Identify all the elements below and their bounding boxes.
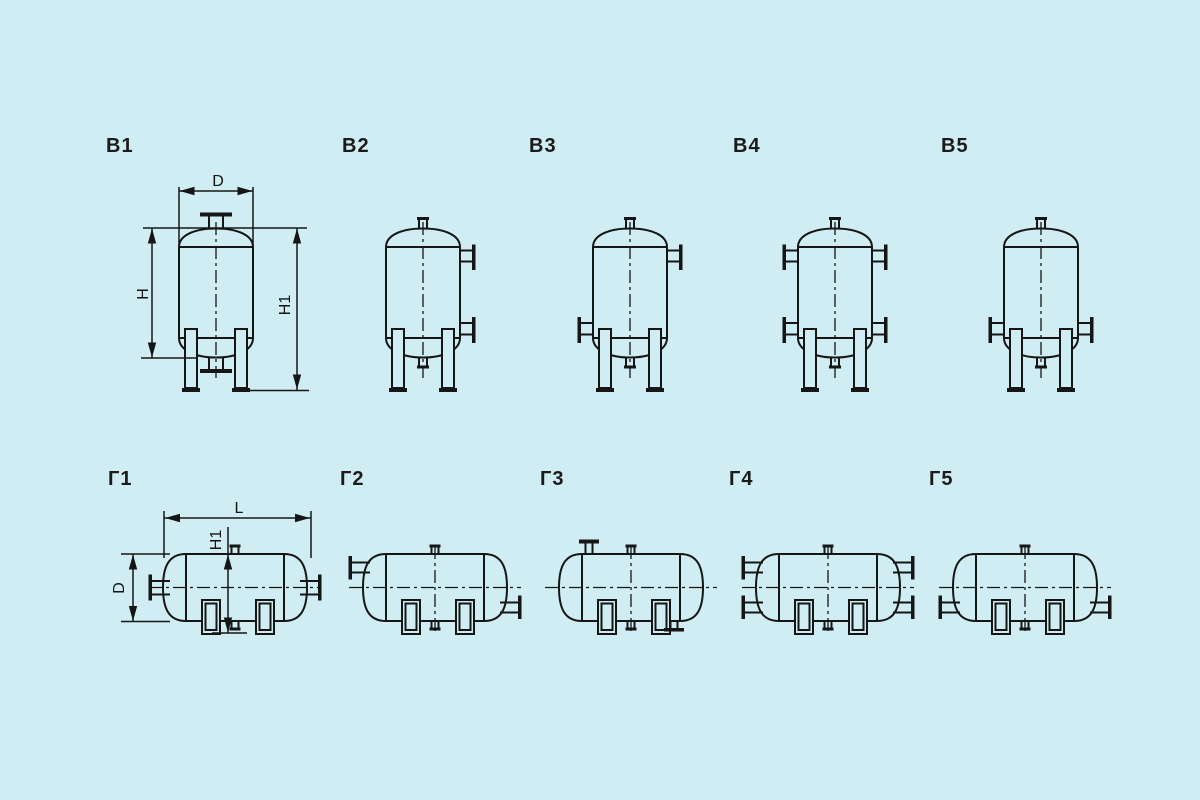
nozzle-side-upper-right	[667, 245, 683, 271]
variant-label-b4: В4	[733, 135, 761, 157]
nozzle-end-lower-left	[939, 596, 961, 620]
vessel-4-horizontal	[742, 545, 915, 635]
dim-label-diameter-g1: D	[111, 582, 128, 594]
nozzle-end-lower-right	[500, 596, 522, 620]
nozzle-side-upper-left	[783, 245, 799, 271]
nozzle-end-lower-left	[742, 596, 764, 620]
drawing-sheet: В1 В2 В3 В4 В5 Г1 Г2 Г3 Г4 Г5 D H H1 L H…	[0, 0, 1200, 800]
dim-label-height-overall-b1: H1	[277, 295, 294, 316]
nozzle-end-upper-left	[349, 556, 371, 580]
nozzle-top-flanged-left	[579, 540, 599, 555]
vessel-5-horizontal	[939, 545, 1112, 635]
variant-label-b1: В1	[106, 135, 134, 157]
vessel-3-horizontal	[545, 540, 717, 635]
vessel-4-vertical	[783, 217, 888, 392]
vessel-2-horizontal	[349, 545, 522, 635]
nozzle-end-upper-left	[742, 556, 764, 580]
variant-label-b3: В3	[529, 135, 557, 157]
vessel-1-vertical	[179, 213, 253, 393]
variant-label-g4: Г4	[729, 468, 753, 490]
nozzle-end-lower-right	[893, 596, 915, 620]
nozzle-side-lower-left	[783, 317, 799, 343]
vessel-1-horizontal	[149, 545, 322, 635]
variant-label-g1: Г1	[108, 468, 132, 490]
nozzle-side-lower-right	[872, 317, 888, 343]
dim-label-diameter-b1: D	[212, 173, 224, 190]
nozzle-side-lower-right	[1078, 317, 1094, 343]
variant-label-b2: В2	[342, 135, 370, 157]
nozzle-side-upper-right	[872, 245, 888, 271]
dim-label-height-overall-g1: H1	[208, 530, 225, 551]
dim-label-height-b1: H	[135, 288, 152, 300]
vessel-types-drawing: В1 В2 В3 В4 В5 Г1 Г2 Г3 Г4 Г5 D H H1 L H…	[0, 0, 1200, 800]
dim-label-length-g1: L	[235, 500, 244, 517]
variant-label-g5: Г5	[929, 468, 953, 490]
nozzle-side-lower-right	[460, 317, 476, 343]
nozzle-side-lower-left	[578, 317, 594, 343]
variant-label-b5: В5	[941, 135, 969, 157]
nozzle-side-lower-left	[989, 317, 1005, 343]
variant-label-g3: Г3	[540, 468, 564, 490]
nozzle-top-stub	[230, 545, 241, 555]
nozzle-bottom-stub	[230, 621, 241, 631]
nozzle-end-lower-right	[1090, 596, 1112, 620]
variant-label-g2: Г2	[340, 468, 364, 490]
nozzle-side-upper-right	[460, 245, 476, 271]
vessel-3-vertical	[578, 217, 683, 392]
vessel-drawings-layer	[121, 187, 1112, 634]
vessel-5-vertical	[989, 217, 1094, 392]
vessel-2-vertical	[386, 217, 476, 392]
nozzle-end-upper-right	[893, 556, 915, 580]
